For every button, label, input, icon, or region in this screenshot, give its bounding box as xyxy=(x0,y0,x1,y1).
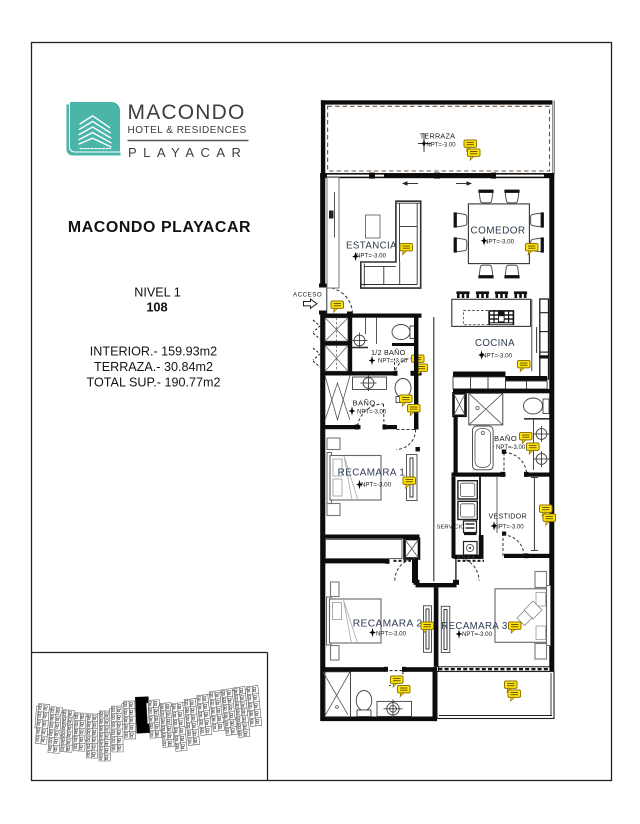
svg-text:NIVEL 1: NIVEL 1 xyxy=(134,286,180,300)
svg-text:NPT=-3.00: NPT=-3.00 xyxy=(484,239,515,246)
svg-text:NPT=-3.00: NPT=-3.00 xyxy=(378,359,408,365)
svg-text:ACCESO: ACCESO xyxy=(293,292,322,299)
svg-text:NPT=-3.00: NPT=-3.00 xyxy=(376,631,407,638)
svg-text:NPT=-3.00: NPT=-3.00 xyxy=(357,410,387,416)
svg-text:RECAMARA 1: RECAMARA 1 xyxy=(338,468,406,479)
svg-text:TERRAZA: TERRAZA xyxy=(420,132,455,141)
svg-text:NPT=-3.00: NPT=-3.00 xyxy=(494,525,524,531)
svg-text:NPT=-3.00: NPT=-3.00 xyxy=(361,482,392,489)
svg-text:ESTANCIA: ESTANCIA xyxy=(346,241,397,252)
svg-text:HOTEL & RESIDENCES: HOTEL & RESIDENCES xyxy=(128,125,247,136)
svg-text:NPT=-3.00: NPT=-3.00 xyxy=(482,353,513,360)
svg-text:COCINA: COCINA xyxy=(475,338,515,349)
svg-text:TOTAL SUP.- 190.77m2: TOTAL SUP.- 190.77m2 xyxy=(87,376,221,390)
svg-text:TERRAZA.- 30.84m2: TERRAZA.- 30.84m2 xyxy=(94,360,213,374)
svg-text:MACONDO PLAYACAR: MACONDO PLAYACAR xyxy=(68,219,251,236)
svg-text:MACONDO: MACONDO xyxy=(128,101,246,124)
svg-text:PLAYACAR: PLAYACAR xyxy=(128,145,247,160)
svg-text:NPT=-3.00: NPT=-3.00 xyxy=(462,631,493,638)
svg-text:1/2 BAÑO: 1/2 BAÑO xyxy=(371,348,406,357)
svg-text:NPT=-3.00: NPT=-3.00 xyxy=(496,445,526,451)
svg-text:COMEDOR: COMEDOR xyxy=(470,226,525,237)
svg-text:INTERIOR.- 159.93m2: INTERIOR.- 159.93m2 xyxy=(90,345,217,359)
svg-text:108: 108 xyxy=(146,300,167,315)
svg-text:NPT=-3.00: NPT=-3.00 xyxy=(356,253,387,260)
svg-text:VESTIDOR: VESTIDOR xyxy=(489,512,527,521)
svg-text:BAÑO: BAÑO xyxy=(494,434,517,443)
svg-text:SERVICIO: SERVICIO xyxy=(437,525,466,531)
svg-text:RECAMARA 2: RECAMARA 2 xyxy=(353,619,423,630)
